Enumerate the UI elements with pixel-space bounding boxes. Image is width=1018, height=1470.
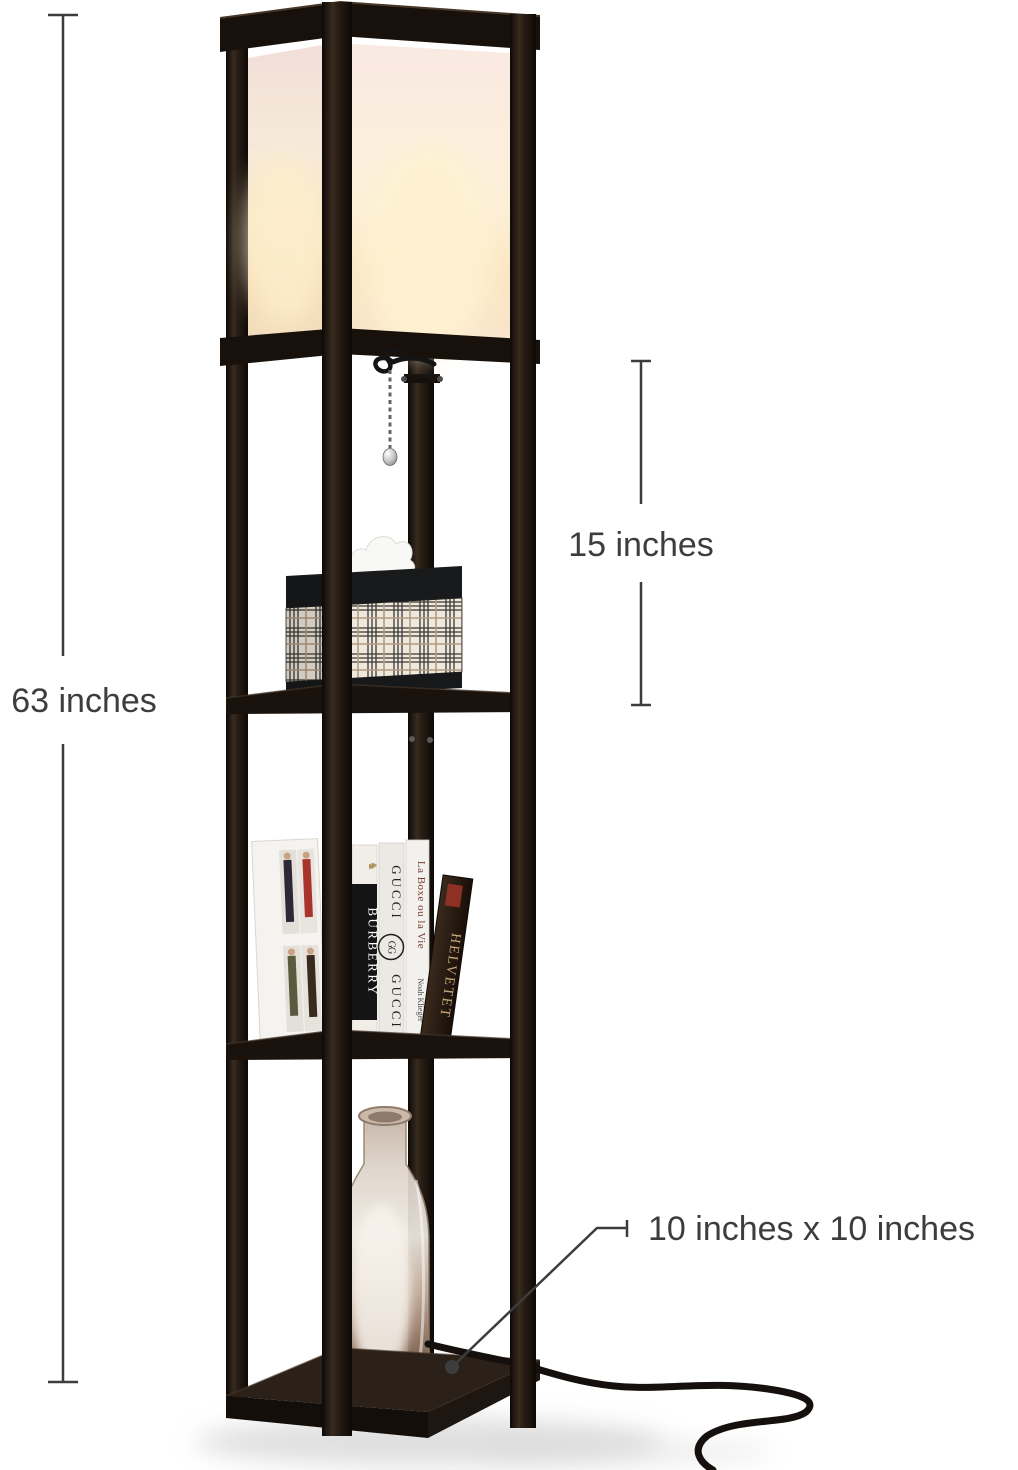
shelf-1: [226, 684, 536, 714]
vase-mouth: [368, 1112, 402, 1123]
magazine: [252, 839, 327, 1044]
bulb-glow-left: [246, 155, 326, 325]
floor-shadow: [195, 1418, 775, 1466]
lamp-shade: [220, 2, 540, 366]
shade-top-rail: [220, 2, 540, 52]
bulb-glow-front: [363, 145, 493, 355]
book-spine-gucci-bottom: GUCCI: [389, 974, 404, 1029]
helvetet-red-label: [445, 884, 463, 908]
book-gucci: GUCCI GG GUCCI: [379, 843, 405, 1050]
book-spine-gucci-top: GUCCI: [389, 865, 404, 920]
books-shelf-items: BURBERRY ♞ ♞ GUCCI GG GUCCI La Boxe ou l…: [252, 839, 473, 1052]
right-post: [510, 14, 536, 1428]
section-dimension-label: 15 inches: [565, 527, 717, 564]
height-dimension-label: 63 inches: [0, 683, 170, 720]
product-image: BURBERRY ♞ ♞ GUCCI GG GUCCI La Boxe ou l…: [0, 0, 1018, 1470]
back-left-post: [226, 22, 248, 1408]
base-leader-line: [452, 1220, 627, 1367]
book-spine-la-boxe: La Boxe ou la Vie: [415, 861, 427, 949]
burberry-knight-emblem-icon: ♞: [366, 861, 378, 871]
base-dimension-label: 10 inches x 10 inches: [648, 1211, 975, 1248]
lamp-illustration: BURBERRY ♞ ♞ GUCCI GG GUCCI La Boxe ou l…: [0, 0, 1018, 1470]
leader-dot: [445, 1360, 459, 1374]
gucci-gg-logo-text: GG: [386, 941, 397, 954]
book-spine-burberry: BURBERRY: [366, 907, 381, 996]
book-burberry: BURBERRY ♞ ♞: [352, 845, 381, 1052]
tissue-box: [286, 537, 462, 698]
tissue-box-side-shade: [286, 576, 324, 698]
front-left-post: [322, 2, 352, 1436]
chain-pull-ball: [383, 449, 397, 466]
